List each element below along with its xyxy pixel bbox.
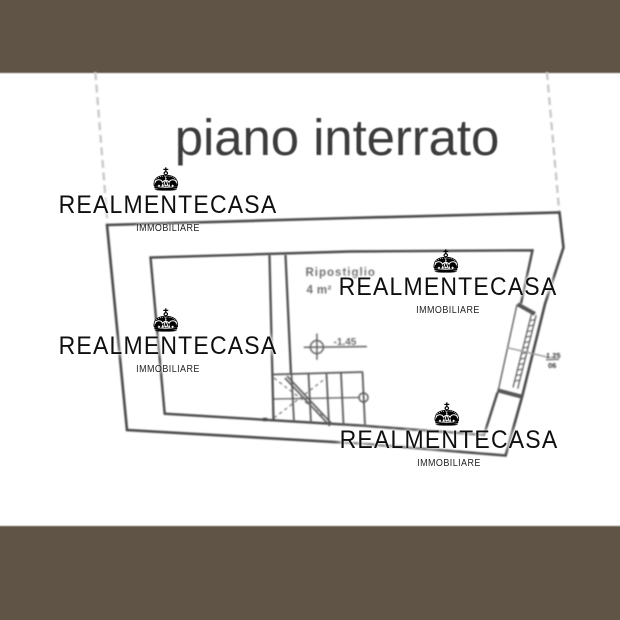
svg-text:06: 06 <box>548 361 556 370</box>
svg-text:-1.45: -1.45 <box>334 337 357 348</box>
svg-text:1.25: 1.25 <box>546 351 561 360</box>
